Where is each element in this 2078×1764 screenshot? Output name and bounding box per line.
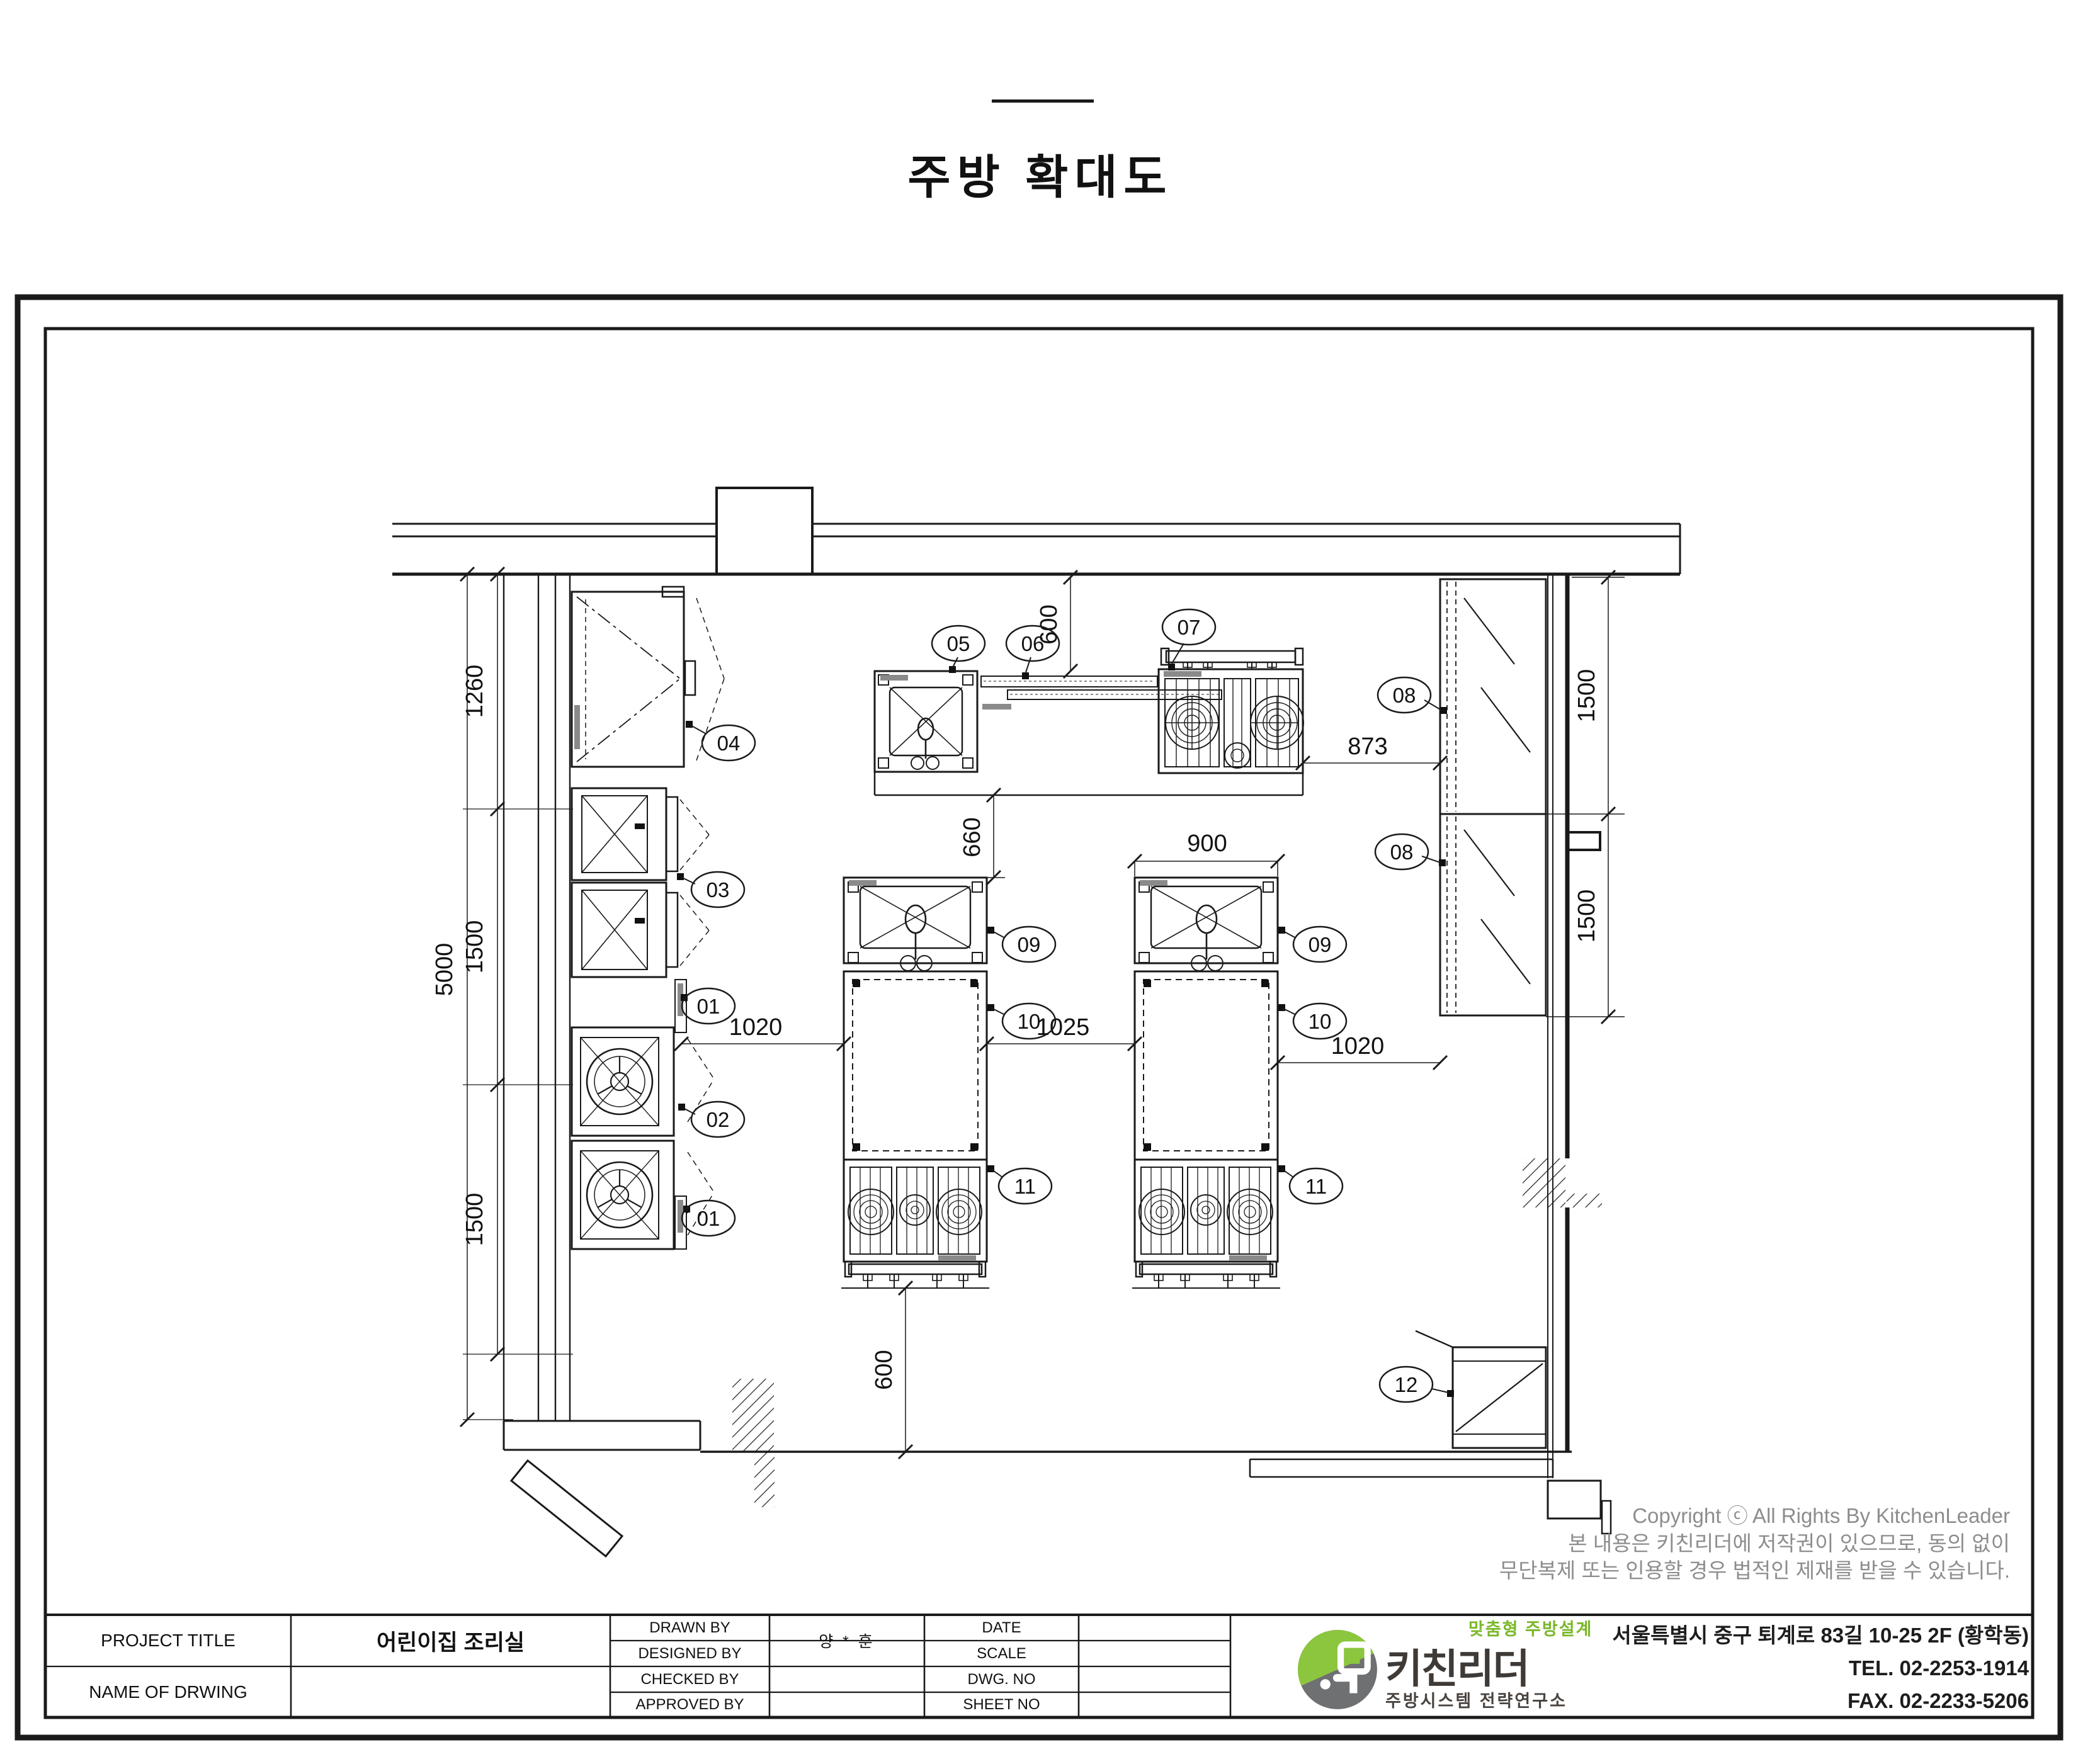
burner-right [1251,696,1303,749]
panel-strip-upper [675,980,686,1032]
callout-08-lower: 08 [1375,834,1446,869]
svg-text:05: 05 [947,632,970,655]
island-gas-manifold [841,1262,989,1288]
dim-1260: 1260 [462,665,488,718]
callout-09-left: 09 [987,927,1055,962]
name-of-drwing-label: NAME OF DRWING [45,1666,291,1717]
dim-1025: 1025 [1036,1014,1090,1041]
door-swing [511,1461,622,1556]
callouts: 04 03 01 02 01 05 06 07 08 08 09 10 11 0… [677,609,1454,1402]
callout-07: 07 [1162,609,1215,670]
designed-by-label: DESIGNED BY [610,1641,769,1666]
column [717,488,812,574]
callout-09-right: 09 [1278,927,1346,962]
address-line: 서울특별시 중구 퇴계로 83길 10-25 2F (황학동) [1612,1619,2029,1652]
logo-subtitle: 주방시스템 전략연구소 [1385,1687,1567,1712]
dim-1500-right-upper: 1500 [1574,669,1600,723]
copyright-line3: 무단복제 또는 인용할 경우 법적인 제재를 받을 수 있습니다. [1317,1557,2010,1585]
checked-by-label: CHECKED BY [610,1666,769,1692]
island-sink [1135,878,1278,971]
dim-1020-right: 1020 [1331,1033,1385,1060]
svg-text:08: 08 [1393,684,1416,707]
sink-cabinet-lower [572,883,709,977]
dim-900: 900 [1187,830,1227,857]
hood-unit [572,587,724,767]
gas-range-wall [1159,648,1303,773]
shelf-unit-upper [1440,579,1546,814]
scale-label: SCALE [924,1641,1079,1666]
logo-brand: 키친리더 [1385,1637,1529,1695]
panel-strip-lower [675,1196,686,1249]
callout-11-left: 11 [987,1165,1052,1204]
wall-nib [1567,832,1600,850]
dimension-1020-left: 1020 [674,1014,851,1051]
svg-text:01: 01 [697,995,720,1018]
island-table [844,971,987,1160]
copyright-line2: 본 내용은 키친리더에 저작권이 있으므로, 동의 없이 [1317,1530,2010,1558]
name-of-drwing-value [291,1666,610,1717]
svg-text:11: 11 [1305,1175,1327,1198]
svg-text:08: 08 [1390,840,1414,864]
dim-660: 660 [959,817,985,857]
date-label: DATE [924,1615,1079,1641]
callout-05: 05 [932,626,985,673]
sink-cabinet-upper [572,788,709,880]
dim-873: 873 [1348,733,1387,760]
burner-small [1225,743,1250,768]
copyright-notice: Copyright ⓒ All Rights By KitchenLeader … [1317,1502,2010,1585]
project-title-value: 어린이집 조리실 [291,1615,610,1666]
svg-text:12: 12 [1395,1373,1418,1396]
work-shelf [981,676,1222,710]
svg-text:09: 09 [1018,933,1041,956]
fax-line: FAX. 02-2233-5206 [1612,1685,2029,1717]
callout-01-lower: 01 [682,1201,735,1236]
floor-plan-canvas: 1260 1500 1500 5000 600 660 873 900 [0,0,2078,1764]
svg-text:01: 01 [697,1207,720,1230]
svg-text:07: 07 [1178,616,1201,639]
island-right [1132,878,1280,1288]
shelf-unit-lower [1440,814,1546,1015]
callout-02: 02 [678,1102,744,1137]
svg-text:06: 06 [1021,632,1045,655]
svg-text:09: 09 [1309,933,1332,956]
svg-text:02: 02 [707,1108,730,1131]
dim-1500-left-b: 1500 [462,1193,488,1247]
dimension-600-bottom: 600 [871,1281,923,1459]
island-left [841,878,989,1288]
dim-1500-right-lower: 1500 [1574,890,1600,943]
svg-text:10: 10 [1309,1010,1332,1033]
dimension-660: 660 [959,788,1005,885]
dimension-900: 900 [1128,830,1285,876]
tel-line: TEL. 02-2253-1914 [1612,1652,2029,1685]
dimension-1025: 1025 [980,1014,1142,1051]
island-range [1135,1160,1278,1262]
company-address-block: 서울특별시 중구 퇴계로 83길 10-25 2F (황학동) TEL. 02-… [1612,1619,2029,1717]
dimension-873: 873 [1296,733,1447,770]
burner-left [1166,696,1218,749]
dim-600-bottom: 600 [871,1350,897,1389]
designer-value: 양 * 훈 [769,1615,924,1666]
dimension-1500-right-lower: 1500 [1546,814,1625,1024]
dimension-chain-left: 1260 1500 1500 5000 [431,567,573,1427]
dim-1500-left-a: 1500 [462,920,488,974]
drawn-by-label: DRAWN BY [610,1615,769,1641]
callout-11-right: 11 [1278,1165,1343,1204]
kitchenleader-logo-mark [1296,1628,1379,1711]
dimension-1500-right-upper: 1500 [1546,570,1625,821]
dim-1020-left: 1020 [729,1014,783,1041]
svg-text:04: 04 [717,732,741,755]
island-gas-manifold [1132,1262,1280,1288]
callout-08-upper: 08 [1378,677,1447,714]
approved-by-label: APPROVED BY [610,1692,769,1717]
svg-text:10: 10 [1018,1010,1041,1033]
dwg-no-label: DWG. NO [924,1666,1079,1692]
copyright-line1: Copyright ⓒ All Rights By KitchenLeader [1317,1502,2010,1530]
island-range [844,1160,987,1262]
dimension-600-top: 600 [1036,570,1077,678]
dim-5000: 5000 [431,943,458,997]
project-title-label: PROJECT TITLE [45,1615,291,1666]
svg-text:11: 11 [1014,1175,1036,1198]
svg-text:03: 03 [707,878,730,902]
drawing-sheet: 주방 확대도 [0,0,2078,1764]
island-sink [844,878,987,971]
wall-sink-unit [875,671,977,772]
callout-01-upper: 01 [681,988,735,1024]
callout-12: 12 [1380,1367,1454,1402]
callout-03: 03 [677,872,744,907]
sheet-no-label: SHEET NO [924,1692,1079,1717]
callout-04: 04 [686,721,755,760]
island-table [1135,971,1278,1160]
dimension-1020-right: 1020 [1271,1033,1447,1070]
